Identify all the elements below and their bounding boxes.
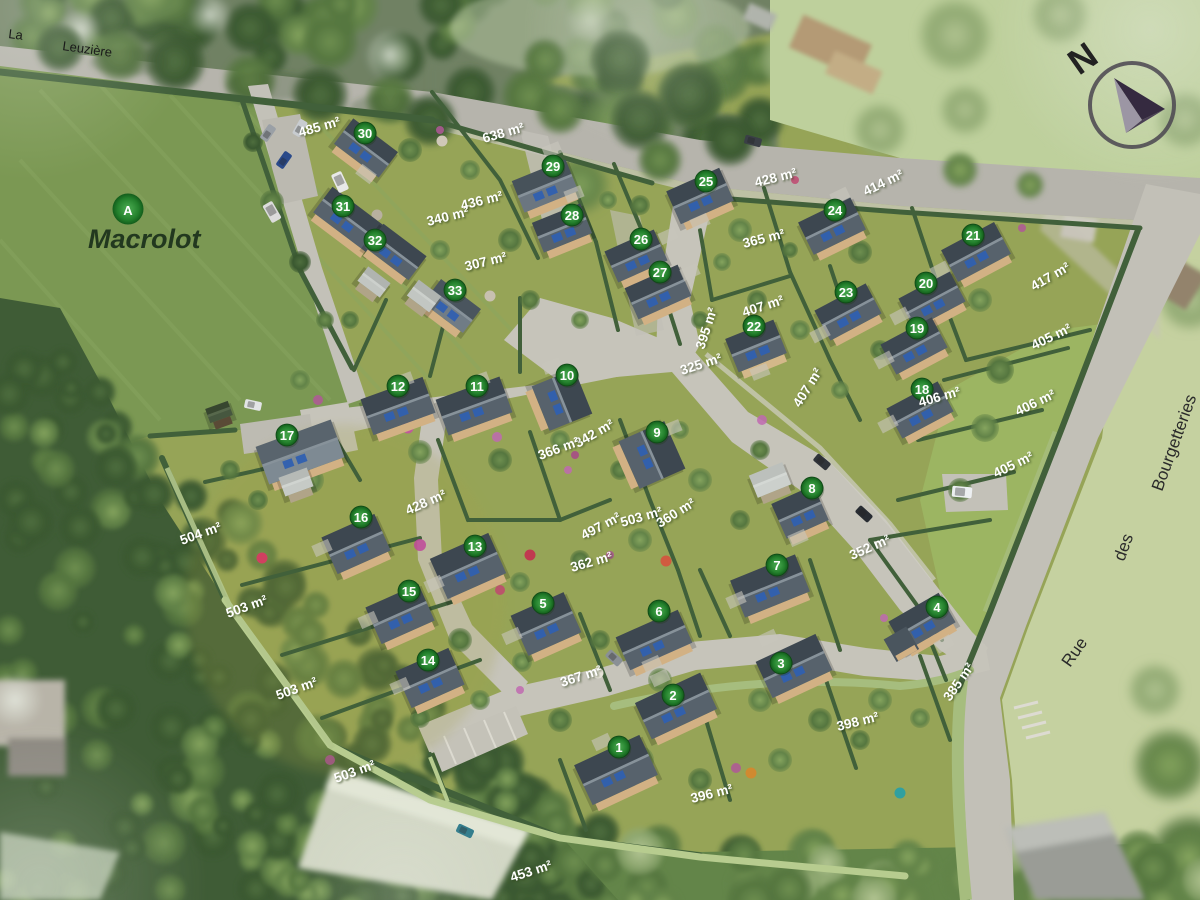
- svg-text:5: 5: [539, 596, 546, 611]
- svg-text:15: 15: [402, 584, 416, 599]
- svg-text:24: 24: [828, 203, 843, 218]
- svg-text:32: 32: [368, 233, 382, 248]
- svg-text:La: La: [8, 26, 25, 43]
- svg-text:3: 3: [777, 656, 784, 671]
- svg-text:26: 26: [634, 232, 648, 247]
- svg-text:10: 10: [560, 368, 574, 383]
- svg-text:9: 9: [653, 425, 660, 440]
- svg-text:12: 12: [391, 379, 405, 394]
- svg-text:28: 28: [565, 208, 579, 223]
- svg-text:8: 8: [808, 481, 815, 496]
- svg-text:16: 16: [354, 510, 368, 525]
- svg-text:A: A: [123, 203, 133, 218]
- svg-text:33: 33: [448, 283, 462, 298]
- svg-text:13: 13: [468, 539, 482, 554]
- svg-text:4: 4: [933, 600, 941, 615]
- svg-text:11: 11: [470, 379, 484, 394]
- svg-text:6: 6: [655, 604, 662, 619]
- svg-text:20: 20: [919, 276, 933, 291]
- svg-text:22: 22: [747, 319, 761, 334]
- svg-text:23: 23: [839, 285, 853, 300]
- svg-text:2: 2: [669, 688, 676, 703]
- svg-text:14: 14: [421, 653, 436, 668]
- svg-text:19: 19: [910, 321, 924, 336]
- svg-text:27: 27: [653, 265, 667, 280]
- svg-text:7: 7: [773, 558, 780, 573]
- svg-text:25: 25: [699, 174, 713, 189]
- svg-text:1: 1: [615, 740, 622, 755]
- svg-text:31: 31: [336, 199, 350, 214]
- svg-text:21: 21: [966, 228, 980, 243]
- svg-text:17: 17: [280, 428, 294, 443]
- svg-text:30: 30: [358, 126, 372, 141]
- svg-text:Macrolot: Macrolot: [88, 224, 202, 254]
- svg-text:29: 29: [546, 159, 560, 174]
